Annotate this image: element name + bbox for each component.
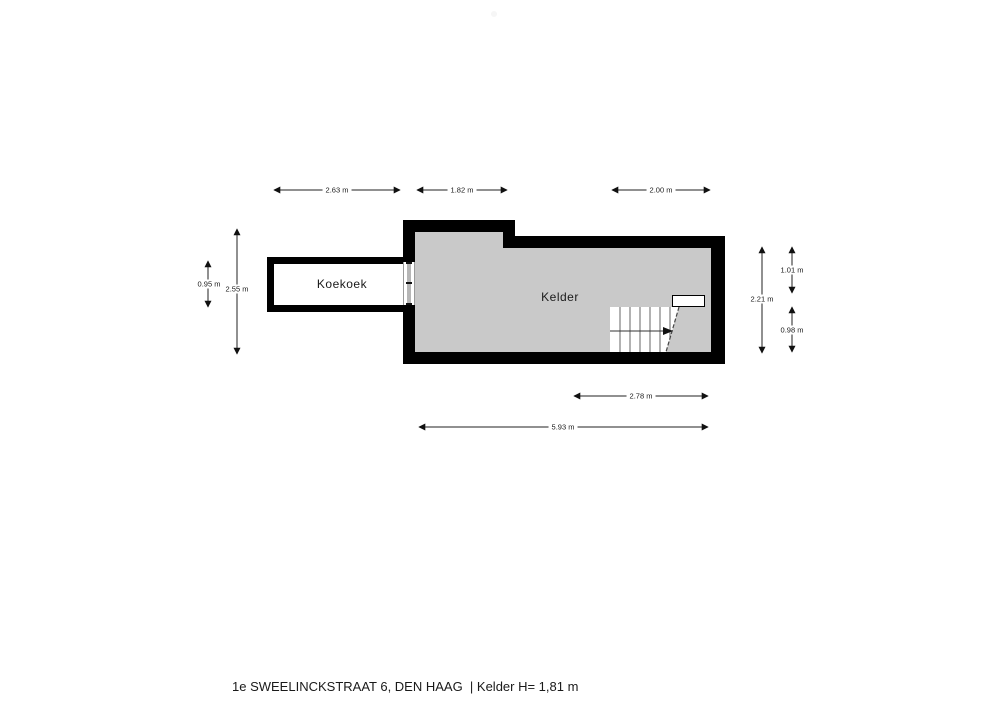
dimension-label: 2.21 m — [748, 295, 777, 304]
staircase-opening — [672, 295, 705, 307]
room-label-kelder: Kelder — [541, 290, 579, 304]
dimension-label: 2.55 m — [223, 285, 252, 294]
floorplan-canvas: Koekoek Kelder 2.63 m 1.82 m 2.00 m 2.78… — [0, 0, 1000, 707]
window-mullion — [406, 262, 412, 264]
dimension-label: 2.78 m — [627, 392, 656, 401]
dimension-label: 0.98 m — [778, 326, 807, 335]
kelder-wall-top-left — [403, 220, 515, 232]
watermark-artifact — [491, 11, 497, 17]
window-mullion — [406, 303, 412, 305]
kelder-wall-bottom — [403, 352, 725, 364]
dimension-label: 1.82 m — [448, 186, 477, 195]
dimension-label: 1.01 m — [778, 266, 807, 275]
kelder-wall-right — [711, 236, 725, 364]
dimension-label: 2.63 m — [323, 186, 352, 195]
dimension-label: 5.93 m — [549, 423, 578, 432]
plan-caption: 1e SWEELINCKSTRAAT 6, DEN HAAG | Kelder … — [232, 679, 578, 694]
dimension-label: 0.95 m — [195, 280, 224, 289]
dimension-label: 2.00 m — [647, 186, 676, 195]
room-label-koekoek: Koekoek — [317, 277, 367, 291]
window — [403, 262, 415, 305]
kelder-floor-left — [415, 232, 503, 352]
window-mullion — [406, 282, 412, 284]
kelder-wall-top-right — [503, 236, 725, 248]
